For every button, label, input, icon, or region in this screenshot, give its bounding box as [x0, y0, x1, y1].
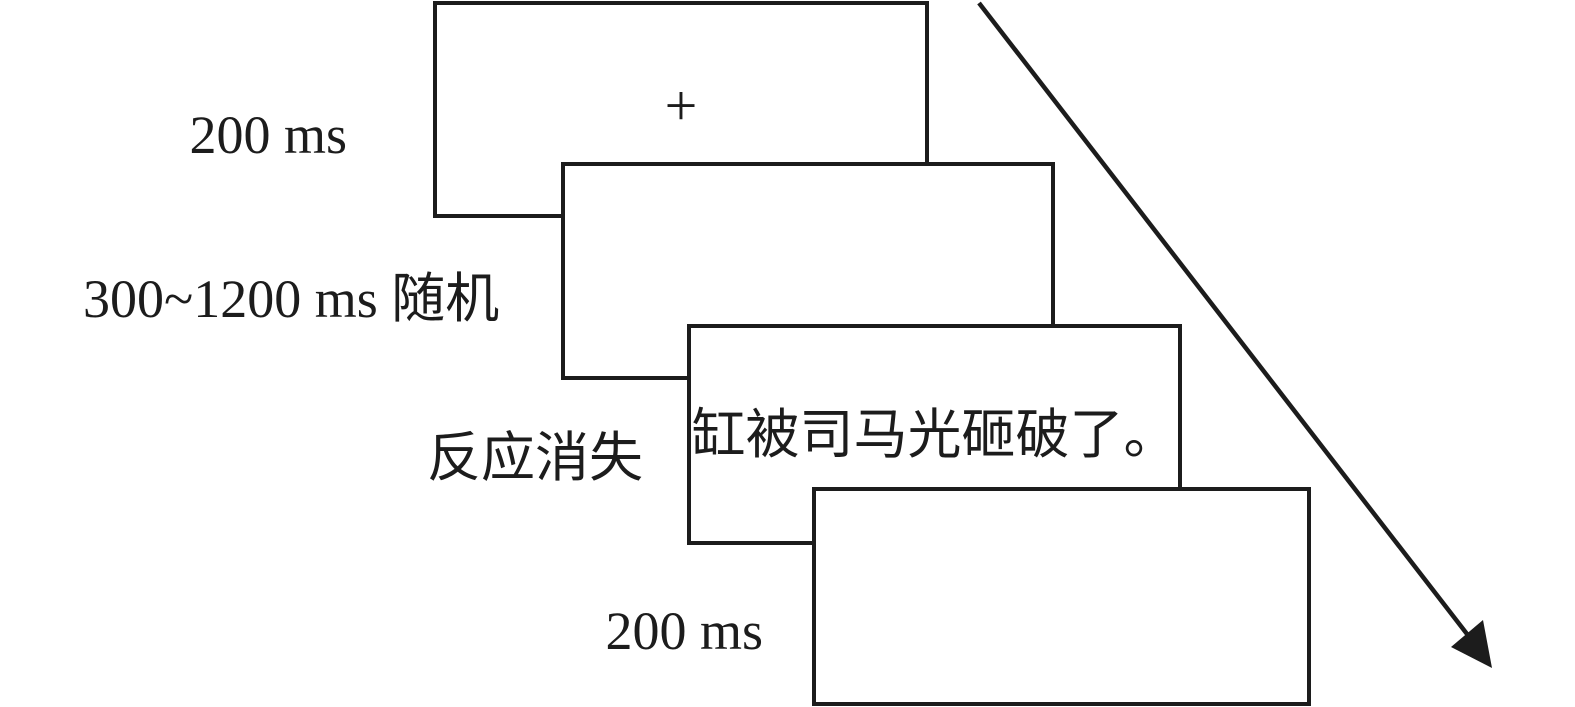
duration-label-final: 200 ms	[563, 604, 763, 658]
duration-label-fixation: 200 ms	[97, 108, 347, 162]
duration-label-interval: 300~1200 ms 随机	[83, 272, 499, 326]
fixation-cross: +	[665, 77, 698, 135]
trial-sequence-diagram: + 缸被司马光砸破了。 200 ms 300~1200 ms 随机 反应消失 2…	[0, 0, 1575, 707]
screen-blank-final	[812, 487, 1311, 706]
duration-label-sentence: 反应消失	[427, 431, 643, 485]
time-arrow-head	[1451, 620, 1492, 668]
sentence-text: 缸被司马光砸破了。	[692, 408, 1178, 462]
